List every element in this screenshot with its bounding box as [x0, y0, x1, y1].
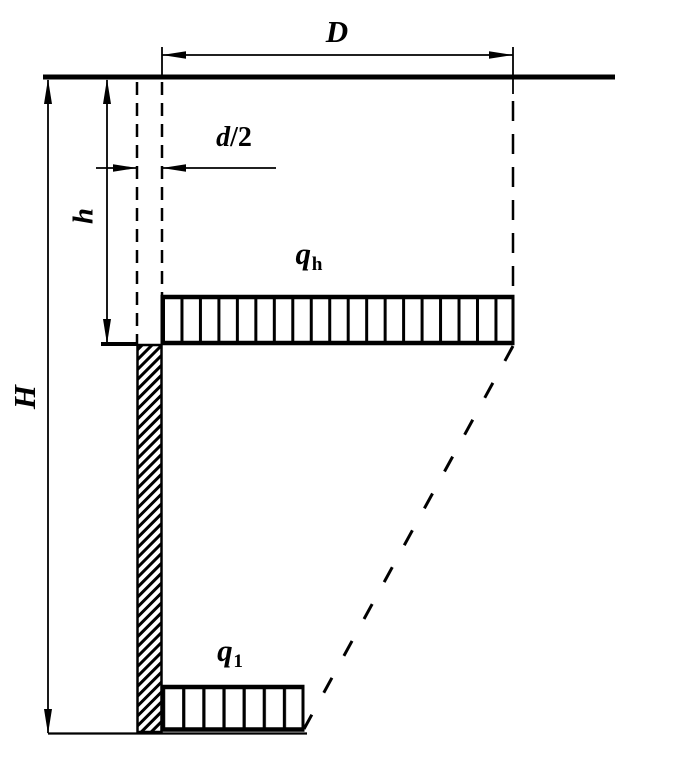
label-d-over-2-suffix: /2 [230, 122, 252, 153]
arrowhead-right-icon [113, 164, 137, 172]
arrowhead-right-icon [489, 51, 513, 59]
load-band-qh-stripes [162, 299, 513, 341]
label-D: D [326, 14, 348, 50]
load-band-q1 [161, 687, 305, 730]
label-q-1-subscript: 1 [233, 651, 243, 672]
load-band-qh [161, 297, 515, 343]
dimension-D [162, 47, 513, 94]
diagram-geometry [0, 0, 700, 770]
label-q-h: qh [296, 236, 323, 276]
dimension-h [101, 79, 138, 344]
pile-shaft-hatched [138, 345, 162, 732]
arrowhead-left-icon [162, 164, 186, 172]
load-band-q1-stripes [162, 689, 303, 728]
label-q-h-base: q [296, 236, 312, 271]
label-q-h-subscript: h [312, 254, 323, 275]
label-q-1: q1 [217, 633, 243, 673]
label-d-over-2-base: d [216, 122, 230, 153]
arrowhead-left-icon [162, 51, 186, 59]
arrowhead-up-icon [103, 79, 111, 104]
label-d-over-2: d/2 [216, 122, 252, 154]
arrowhead-down-icon [44, 709, 52, 734]
pile-load-diagram: D d/2 h H qh q1 [0, 0, 700, 770]
label-H: H [7, 385, 43, 409]
dimension-H [44, 79, 52, 734]
arrowhead-up-icon [44, 79, 52, 104]
dimension-d-over-2 [96, 164, 276, 172]
label-h: h [67, 208, 100, 224]
label-q-1-base: q [217, 633, 233, 668]
arrowhead-down-icon [103, 319, 111, 344]
diagonal-dashed-influence-line [304, 346, 513, 729]
